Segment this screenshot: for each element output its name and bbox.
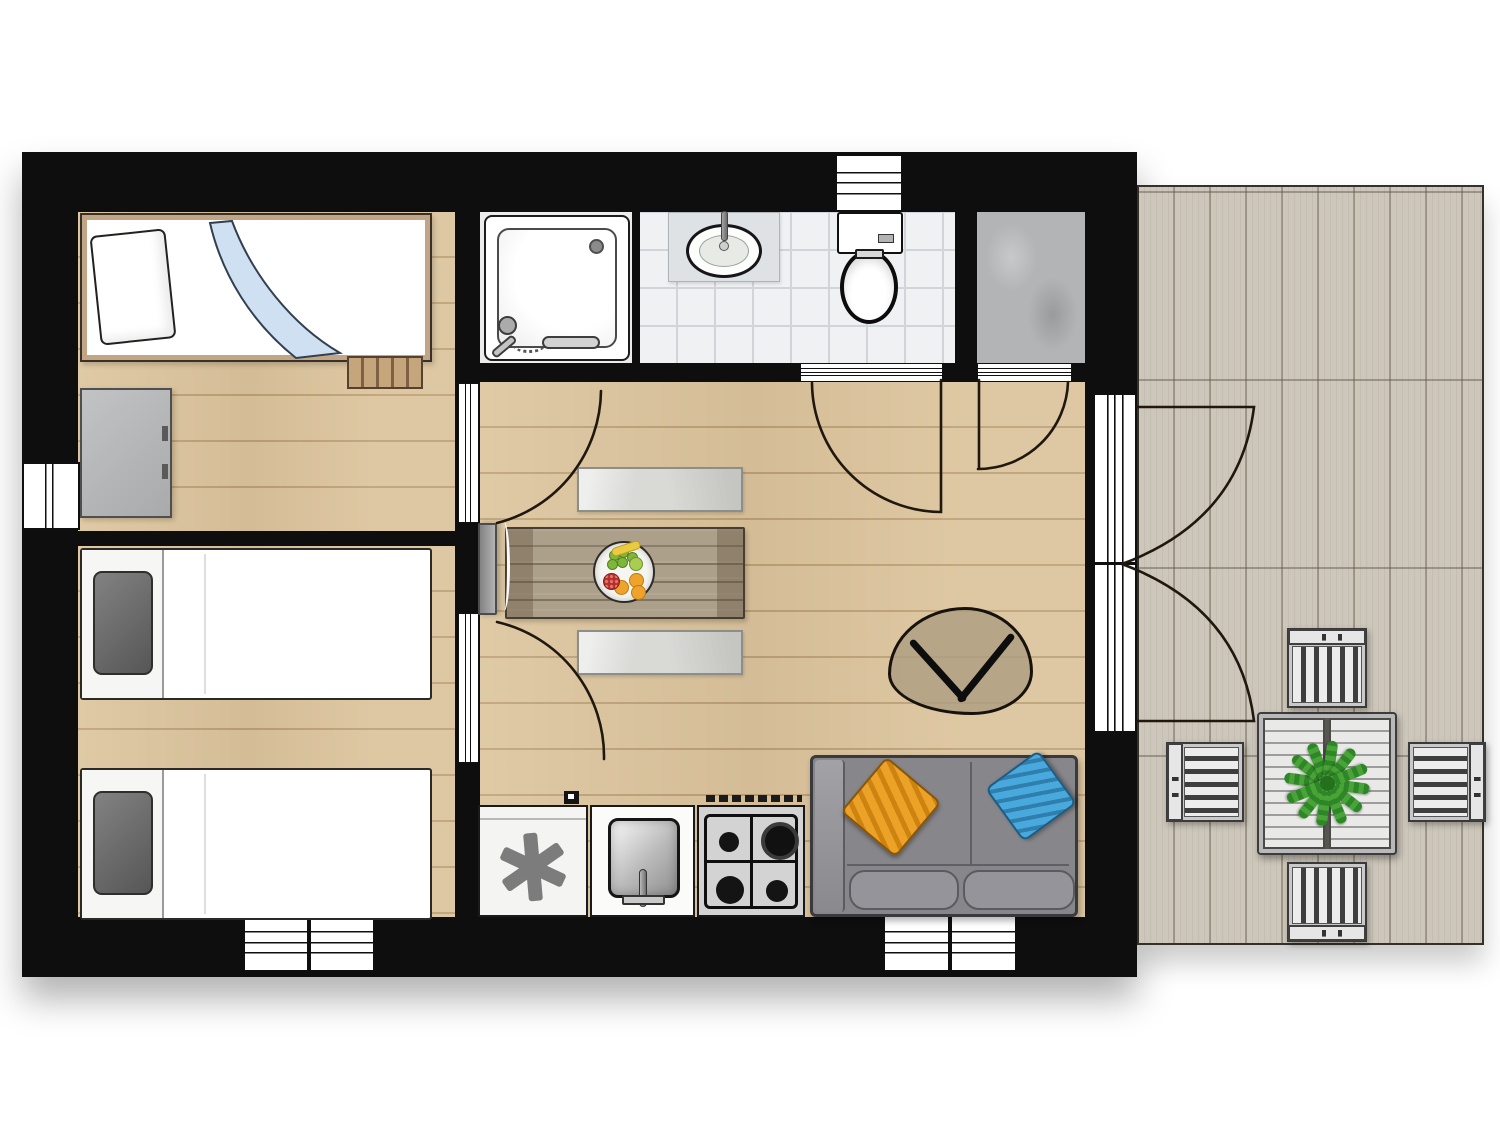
fruit-bowl (593, 541, 655, 603)
wall-bedroom-divider (78, 531, 457, 546)
toilet-cistern (837, 212, 903, 254)
sink-faucet-base (719, 241, 729, 251)
bed-single-2 (80, 548, 432, 700)
bedroom2-door-leaf (458, 613, 479, 763)
shower (484, 215, 630, 361)
sofa-pillow-orange (840, 756, 941, 857)
chair-backrest (1288, 629, 1366, 645)
floor-plan (0, 0, 1500, 1125)
wall-bath-storage (955, 212, 977, 382)
fridge-freezer (478, 805, 588, 917)
toilet (837, 212, 903, 324)
stove-burner-icon (761, 822, 799, 860)
kitchen-sink (590, 805, 695, 917)
patio-chair-west (1166, 742, 1244, 822)
sink-faucet-icon (721, 211, 728, 241)
storage-floor (977, 212, 1085, 363)
sofa-seat-cushion (963, 870, 1075, 910)
fruit-item (631, 585, 646, 600)
sofa (810, 755, 1078, 917)
toilet-seat-hinge (855, 249, 884, 259)
gas-stove (697, 805, 805, 917)
chair-backrest (1469, 743, 1485, 821)
stove-burner-icon (766, 880, 788, 902)
plant-core-icon (1320, 776, 1335, 791)
sofa-seat-cushion (849, 870, 959, 910)
patio-chair-south (1287, 862, 1367, 942)
duvet-seam (204, 774, 206, 914)
bench-north (577, 467, 743, 512)
luggage-rack (347, 356, 423, 389)
bed-blanket (82, 215, 434, 364)
sofa-back-line (847, 864, 1069, 866)
stove-burner-icon (716, 876, 744, 904)
potted-plant (1283, 739, 1371, 827)
chair-seat (1184, 747, 1239, 817)
tv-panel (478, 523, 497, 615)
wall-shower-bath (632, 212, 640, 363)
window-toilet-north (835, 154, 903, 212)
shower-hose (512, 335, 546, 353)
bathroom-door-sill (800, 363, 943, 382)
patio-chair-east (1408, 742, 1486, 822)
sofa-back-seam (970, 762, 972, 864)
wall-partition-main (455, 212, 480, 917)
bathroom-sink (668, 212, 780, 282)
window-bedroom2-south (243, 913, 375, 972)
shower-rail (542, 336, 600, 349)
bed-single-3 (80, 768, 432, 920)
kitchen-faucet-handle (622, 895, 665, 905)
bedroom1-door-leaf (458, 383, 479, 523)
french-door-east (1093, 393, 1137, 733)
chair-backrest (1288, 925, 1366, 941)
window-living-south (883, 913, 1017, 972)
sofa-armrest (815, 760, 845, 912)
stove-burner-icon (719, 832, 739, 852)
shower-drain-icon (589, 239, 604, 254)
chair-seat (1413, 747, 1468, 817)
window-bedroom2-west (22, 462, 80, 530)
toilet-flush-button (878, 234, 894, 243)
bed-pillow (93, 791, 153, 895)
fruit-item (603, 573, 620, 590)
fruit-item (629, 557, 643, 571)
bed-pillow (93, 571, 153, 675)
wall-top (22, 152, 1137, 212)
sofa-pillow-blue (985, 750, 1077, 842)
chair-backrest (1167, 743, 1183, 821)
chair-seat (1292, 867, 1362, 924)
storage-door-sill (977, 363, 1072, 382)
dresser (80, 388, 172, 518)
table-hand-left (908, 638, 967, 703)
toilet-bowl (840, 250, 898, 324)
wall-left (22, 212, 78, 917)
fruit-item (617, 557, 628, 568)
duvet-seam (204, 554, 206, 694)
bed-single-1 (80, 213, 432, 362)
table-hand-right (956, 632, 1016, 703)
patio-chair-north (1287, 628, 1367, 708)
wall-switch (564, 791, 579, 804)
shower-handset-icon (498, 316, 517, 335)
bench-south (577, 630, 743, 675)
stove-knobs (706, 795, 802, 802)
chair-seat (1292, 646, 1362, 703)
